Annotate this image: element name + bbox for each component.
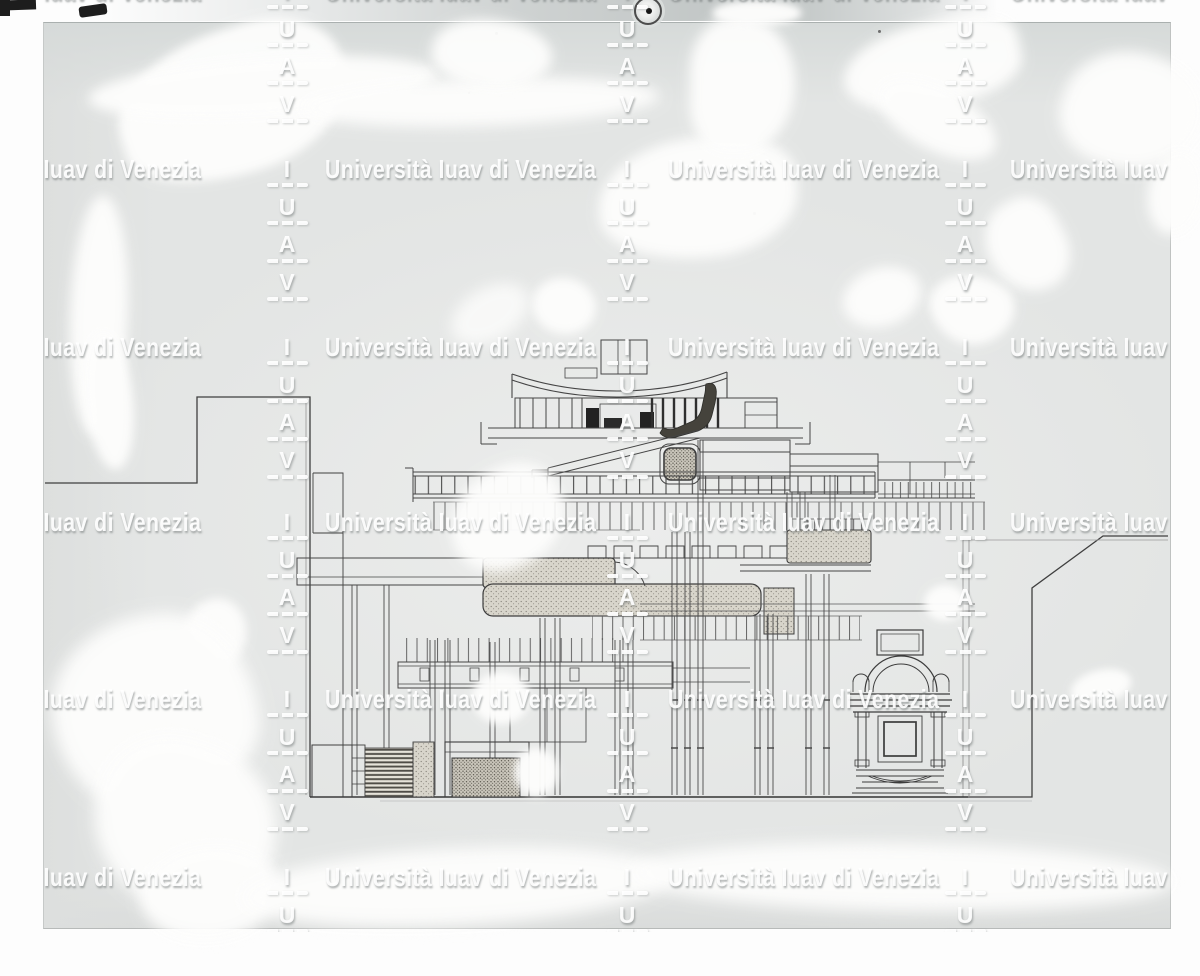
mid-fin-rows <box>402 616 862 662</box>
retouching-paint-blob <box>514 748 558 796</box>
lower-slab-band <box>398 662 750 688</box>
retouching-paint-blob <box>712 0 802 26</box>
retouching-paint-blob <box>472 672 530 724</box>
rooftop-pavilion-row <box>515 398 777 428</box>
archival-photograph: Università Iuav di VeneziaUniversità Iua… <box>0 0 1200 976</box>
left-wing-band <box>297 558 483 585</box>
right-skyline-outline <box>963 536 1168 797</box>
retouching-paint-blob <box>924 585 966 621</box>
mounting-hole-pin <box>646 8 652 14</box>
sculpture-figure <box>660 383 716 438</box>
dust-speck <box>878 30 881 33</box>
aedicule-chapel <box>848 630 952 793</box>
canopy-roof <box>512 340 727 398</box>
